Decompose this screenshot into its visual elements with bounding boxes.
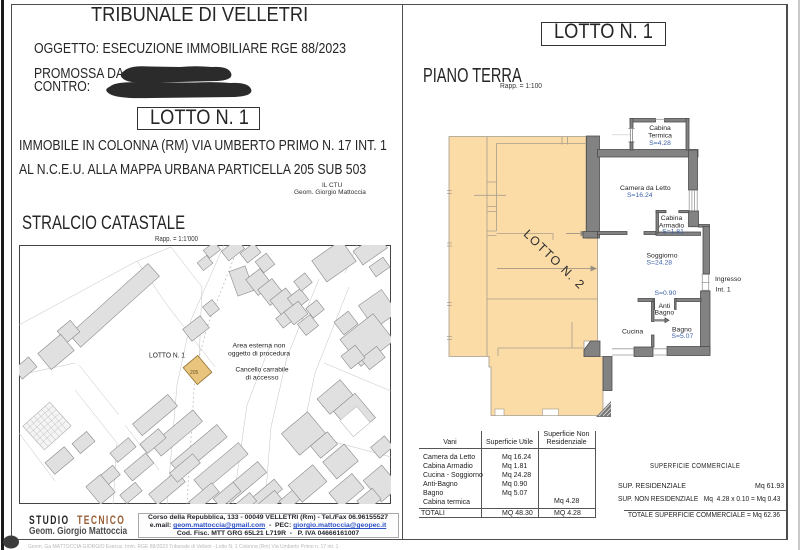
svg-text:Bagno: Bagno bbox=[655, 310, 675, 317]
svg-text:Cucina: Cucina bbox=[622, 329, 643, 336]
svg-text:205: 205 bbox=[190, 370, 199, 376]
svg-text:Camera da Letto: Camera da Letto bbox=[620, 185, 671, 192]
svg-text:Cabina: Cabina bbox=[661, 215, 683, 222]
svg-text:oggetto di procedura: oggetto di procedura bbox=[228, 351, 290, 358]
svg-text:S=24.28: S=24.28 bbox=[647, 260, 673, 267]
svg-text:S=0.90: S=0.90 bbox=[655, 290, 677, 297]
svg-text:S=5.07: S=5.07 bbox=[672, 333, 694, 340]
svg-text:Cabina: Cabina bbox=[649, 125, 671, 132]
svg-text:di accesso: di accesso bbox=[246, 375, 279, 382]
svg-text:Ingresso: Ingresso bbox=[715, 276, 741, 283]
svg-text:LOTTO N. 1: LOTTO N. 1 bbox=[149, 351, 185, 360]
svg-text:S=16.24: S=16.24 bbox=[627, 192, 653, 199]
svg-text:Termica: Termica bbox=[648, 133, 672, 140]
svg-text:S=1.81: S=1.81 bbox=[662, 229, 684, 236]
svg-text:Soggiorno: Soggiorno bbox=[647, 253, 678, 260]
svg-text:Area esterna non: Area esterna non bbox=[233, 343, 286, 350]
svg-text:S=4.28: S=4.28 bbox=[649, 140, 671, 147]
svg-text:Int. 1: Int. 1 bbox=[716, 287, 731, 294]
svg-text:Cancello carrabile: Cancello carrabile bbox=[236, 367, 289, 374]
